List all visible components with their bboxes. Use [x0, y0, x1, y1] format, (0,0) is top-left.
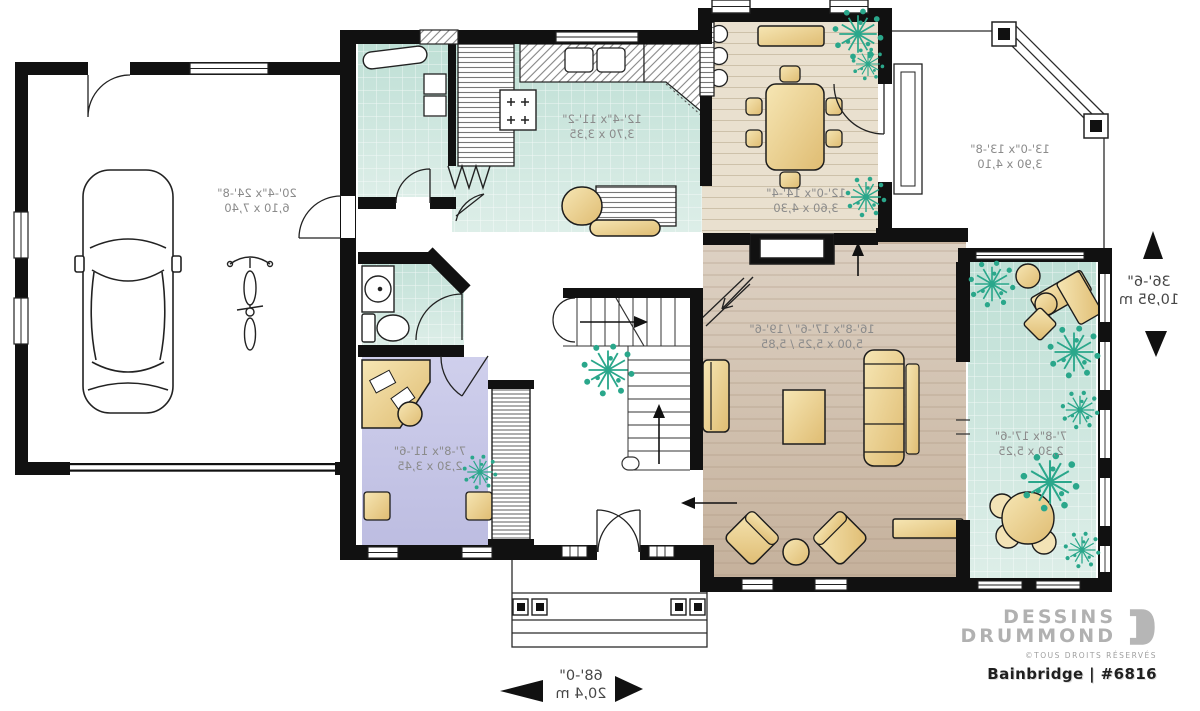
label-garage: 20'-4"x 24'-8"6,10 x 7,40 — [217, 186, 297, 216]
arrow-right — [615, 676, 643, 702]
stairs — [553, 298, 690, 470]
drummond-d-icon — [1123, 605, 1157, 649]
floor-plan: 20'-4"x 24'-8"6,10 x 7,40 12'-4"x 11'-2"… — [0, 0, 1200, 711]
brand-wordmark: DESSINS DRUMMOND — [961, 608, 1116, 647]
coffee-table — [783, 390, 825, 444]
arrow-left — [500, 680, 543, 702]
label-sunroom: 7'-8"x 17'-6"2,30 x 5,25 — [995, 429, 1067, 459]
deck — [892, 24, 1106, 250]
label-deck: 13'-0"x 13'-8"3,90 x 4,10 — [970, 142, 1050, 172]
overall-depth-dimension: 36'-6"10,95 m — [1119, 273, 1179, 309]
patio-door-panel — [894, 64, 922, 194]
deck-posts — [992, 22, 1108, 138]
sofa — [864, 350, 904, 466]
tv-cabinet — [893, 519, 963, 538]
arrow-up — [1143, 231, 1163, 259]
copyright-text: ©TOUS DROITS RÉSERVÉS — [961, 651, 1157, 660]
arrow-down — [1145, 331, 1167, 357]
overall-width-dimension: 68'-0"20,4 m — [555, 667, 606, 703]
side-table — [783, 539, 809, 565]
label-kitchen: 12'-4"x 11'-2"3,70 x 3,35 — [562, 112, 642, 142]
brand-block: DESSINS DRUMMOND ©TOUS DROITS RÉSERVÉS B… — [961, 605, 1157, 683]
label-living: 16'-8"x 17'-6" / 19'-6"5,00 x 5,25 / 5,8… — [749, 322, 874, 352]
label-office: 7'-8"x 11'-6"2,30 x 3,45 — [394, 444, 466, 474]
plan-title: Bainbridge | #6816 — [961, 665, 1157, 683]
round-table — [1002, 492, 1054, 544]
bicycle — [228, 257, 273, 350]
porch-columns — [513, 599, 705, 615]
closet — [492, 388, 530, 548]
label-dining: 12'-0"x 14'-4"3,60 x 4,30 — [766, 186, 846, 216]
car — [75, 170, 181, 413]
